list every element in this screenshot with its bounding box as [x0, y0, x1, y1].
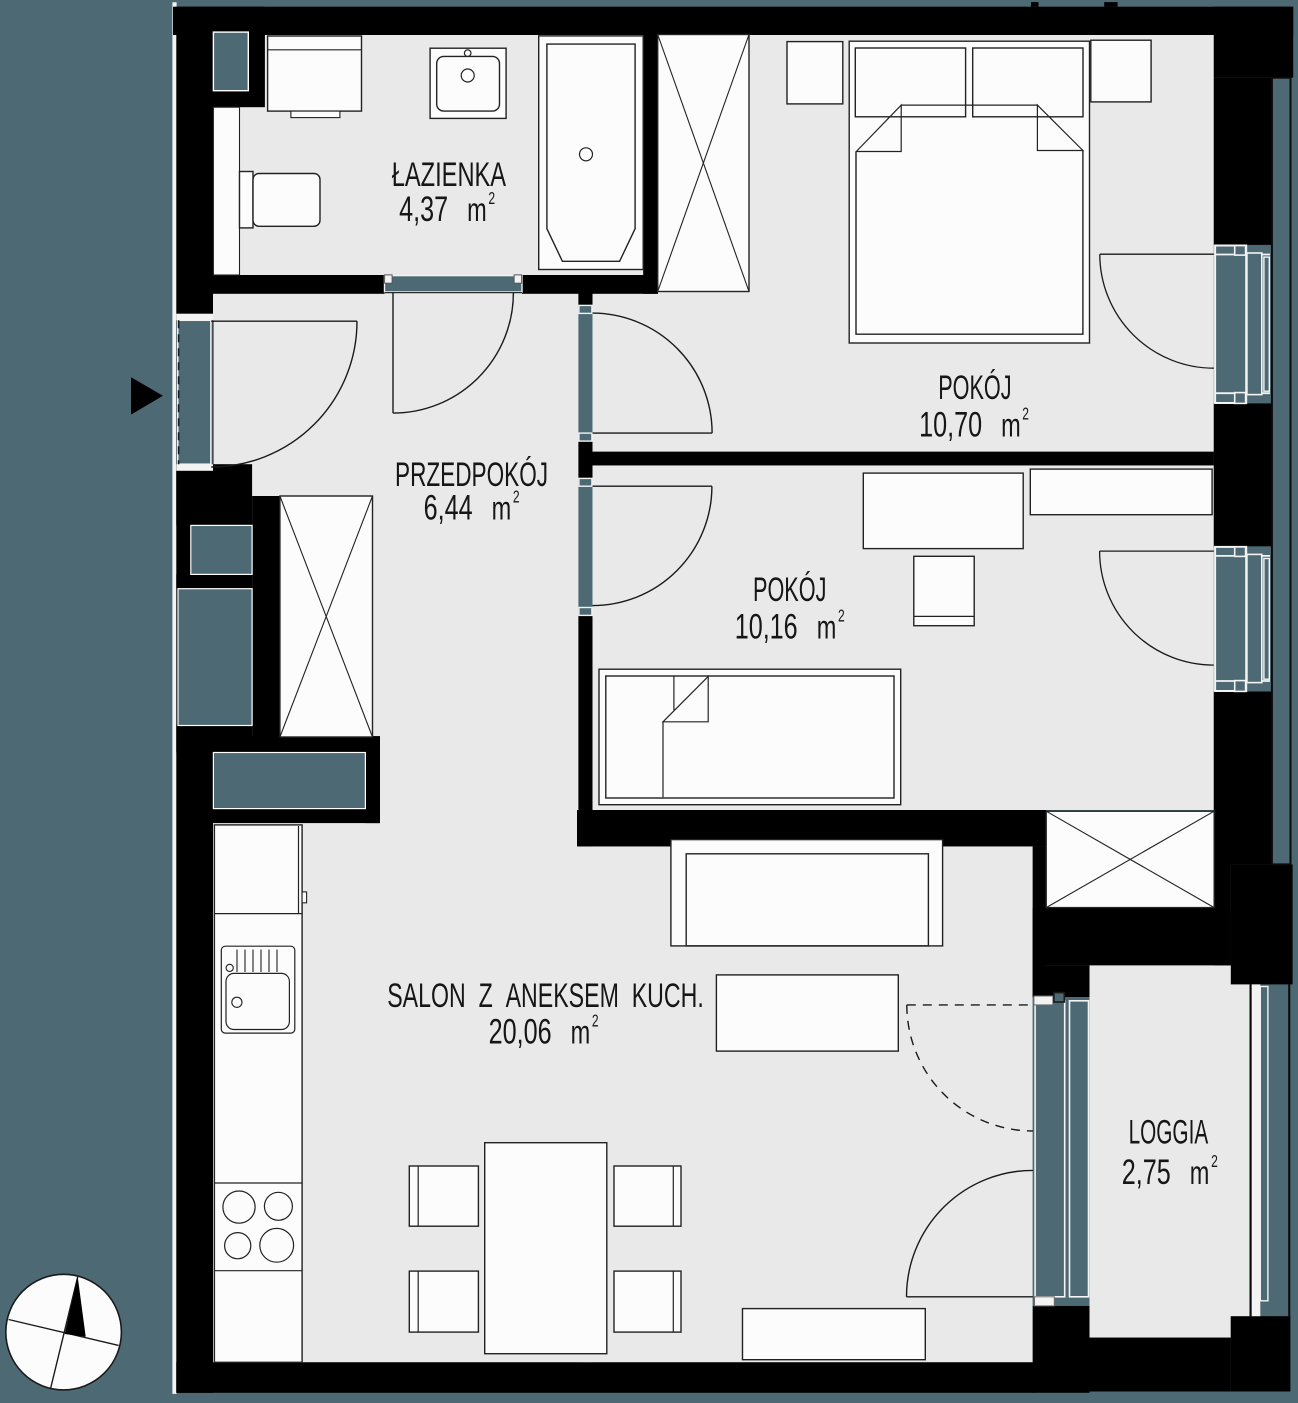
svg-text:20,06: 20,06 — [489, 1013, 552, 1052]
svg-text:6,44: 6,44 — [424, 488, 473, 527]
svg-text:m: m — [492, 489, 512, 526]
svg-text:2: 2 — [1022, 404, 1029, 424]
svg-text:m: m — [1190, 1154, 1210, 1191]
svg-text:m: m — [817, 609, 837, 646]
svg-text:POKÓJ: POKÓJ — [753, 571, 826, 609]
svg-text:10,16: 10,16 — [735, 608, 798, 647]
svg-text:2: 2 — [488, 188, 495, 208]
svg-text:LOGGIA: LOGGIA — [1129, 1114, 1209, 1152]
svg-text:2: 2 — [1211, 1151, 1218, 1171]
svg-text:2: 2 — [513, 486, 520, 506]
svg-text:2,75: 2,75 — [1122, 1153, 1171, 1192]
svg-text:2: 2 — [592, 1011, 599, 1031]
svg-text:POKÓJ: POKÓJ — [938, 369, 1011, 407]
svg-text:m: m — [571, 1014, 591, 1051]
svg-text:2: 2 — [838, 606, 845, 626]
svg-text:m: m — [1001, 407, 1021, 444]
svg-text:10,70: 10,70 — [919, 406, 982, 445]
svg-text:SALON Z ANEKSEM KUCH.: SALON Z ANEKSEM KUCH. — [387, 977, 704, 1015]
svg-text:4,37: 4,37 — [399, 190, 448, 229]
svg-text:m: m — [467, 191, 487, 228]
